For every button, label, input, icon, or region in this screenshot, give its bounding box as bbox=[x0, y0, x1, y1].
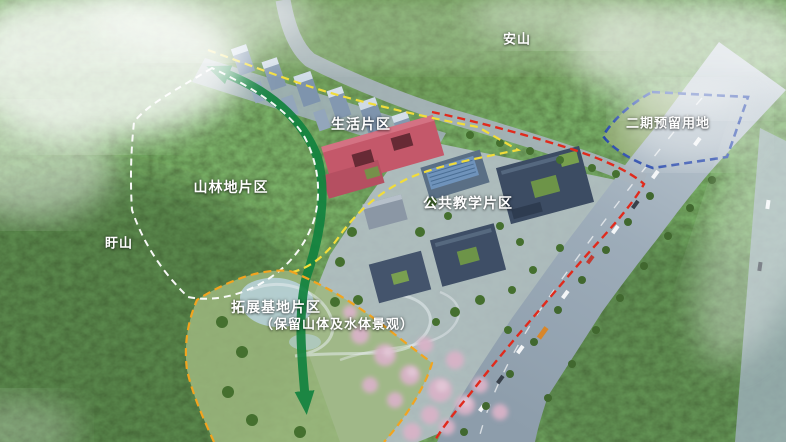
scenery-canvas bbox=[0, 0, 786, 442]
masterplan-rendering: 安山 二期预留用地 生活片区 山林地片区 盱山 公共教学片区 拓展基地片区 （保… bbox=[0, 0, 786, 442]
